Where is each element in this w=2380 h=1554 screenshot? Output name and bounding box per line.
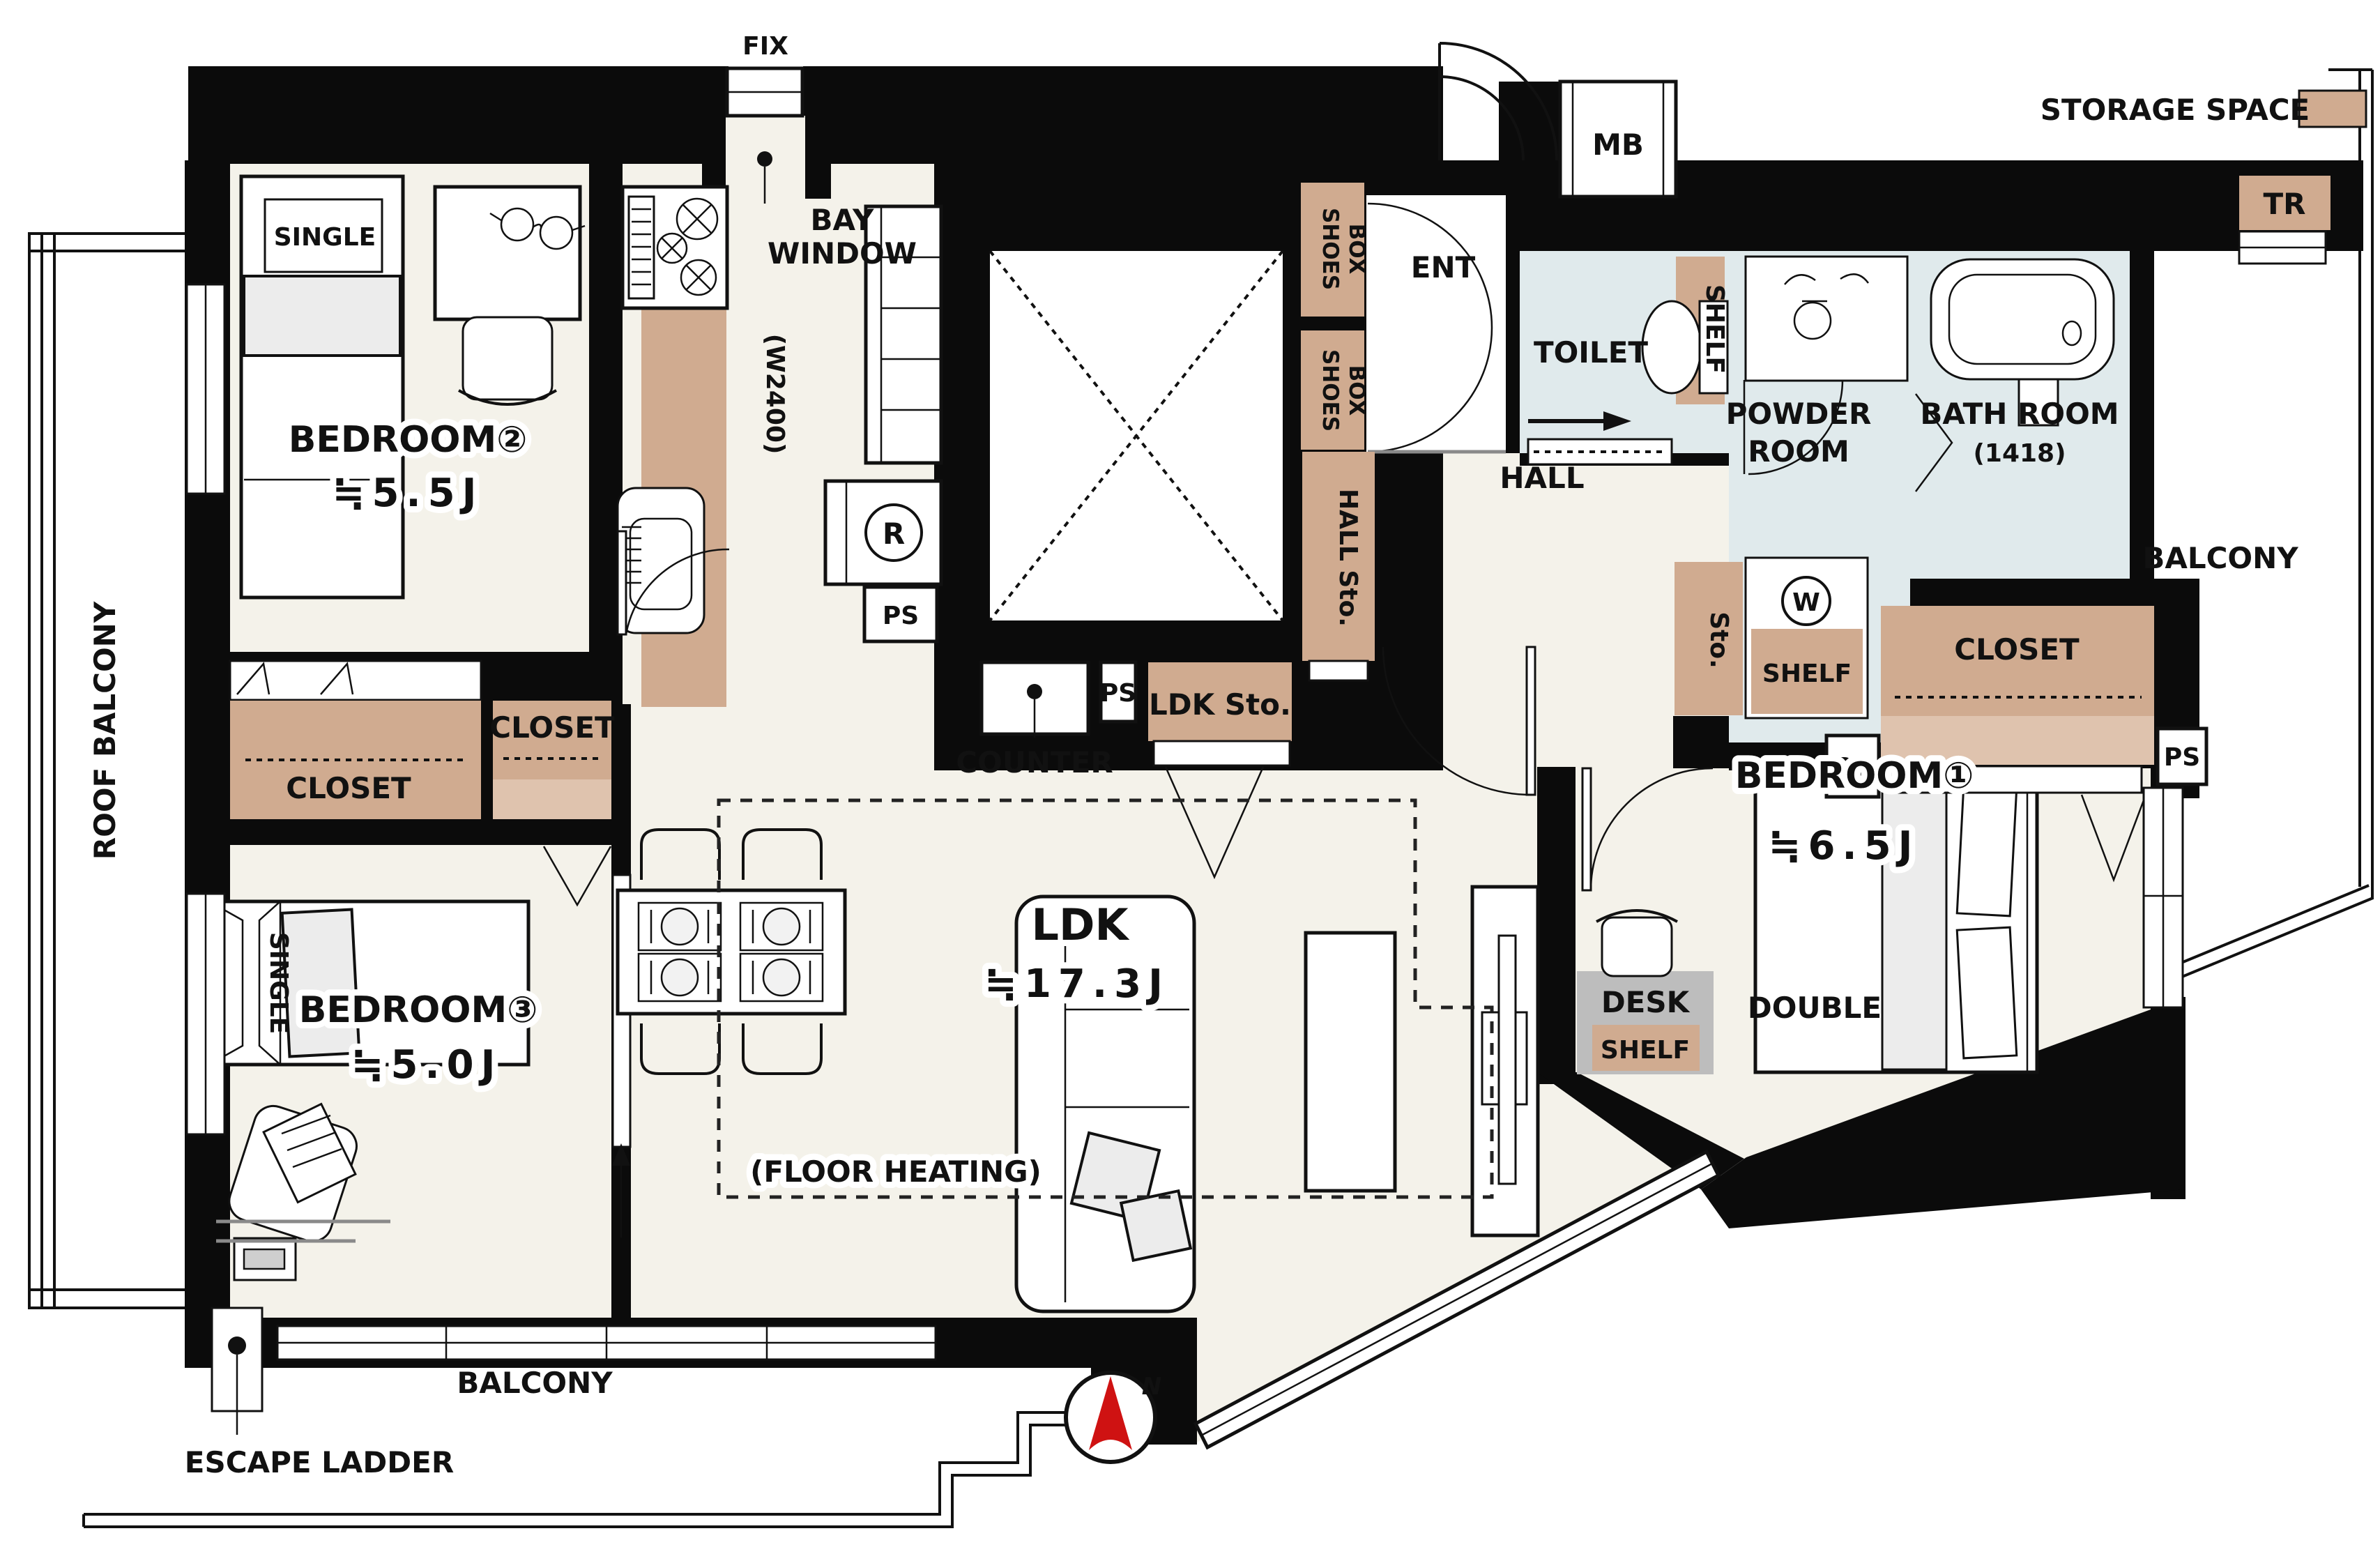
bedroom2-label: BEDROOM② xyxy=(289,419,528,461)
bedroom2-chair xyxy=(463,317,552,399)
bay-window xyxy=(726,68,805,204)
north-label: N xyxy=(1142,1373,1161,1401)
powder-sto-label: Sto. xyxy=(1704,611,1733,669)
balcony-right-label: BALCONY xyxy=(2142,541,2298,575)
ldk-size: ≒17.3J xyxy=(984,961,1170,1007)
ent-floor xyxy=(1366,195,1506,452)
bay-window-label-2: WINDOW xyxy=(768,236,917,271)
bay-window-label-1: BAY xyxy=(811,203,874,237)
escape-ladder-box xyxy=(212,1308,262,1435)
washer-label: W xyxy=(1792,588,1820,617)
bedroom2-desk xyxy=(435,187,580,319)
bed3-single-label: SINGLE xyxy=(264,932,293,1035)
hall-label: HALL xyxy=(1500,461,1584,495)
bedroom1-size: ≒6.5J xyxy=(1769,823,1920,869)
desk-shelf-label: SHELF xyxy=(1601,1036,1690,1065)
counter-label: COUNTER xyxy=(956,745,1113,779)
tv xyxy=(1499,936,1516,1184)
ent-label: ENT xyxy=(1411,250,1476,284)
coffee-table xyxy=(1306,933,1395,1191)
floor-heating-label: (FLOOR HEATING) xyxy=(750,1155,1042,1189)
closet1-label: CLOSET xyxy=(1954,632,2080,666)
bed2-single-label: SINGLE xyxy=(274,223,376,252)
bedroom1-chair xyxy=(1602,917,1672,976)
bedroom2-size: ≒5.5J xyxy=(333,471,484,516)
closet2-label: CLOSET xyxy=(286,771,411,805)
toilet-bowl xyxy=(1642,301,1701,393)
bedroom3-label: BEDROOM③ xyxy=(299,989,538,1031)
roof-balcony-label: ROOF BALCONY xyxy=(88,601,122,860)
bed-single-3 xyxy=(209,901,528,1065)
ps-kitchen-label: PS xyxy=(883,602,919,630)
ldk-storage-sill xyxy=(1154,741,1290,765)
fix-label: FIX xyxy=(742,32,788,61)
powder-room-label-1: POWDER xyxy=(1726,397,1872,431)
shoes-box1-label-1: SHOES xyxy=(1318,208,1343,290)
closet3-label: CLOSET xyxy=(489,710,615,745)
toilet-label: TOILET xyxy=(1534,335,1648,370)
shoes-box2-label-2: BOX xyxy=(1344,365,1369,416)
shoes-box1-label-2: BOX xyxy=(1344,224,1369,275)
floor-plan-page: FIX BAY WINDOW (W2400) MB STORAGE SPACE … xyxy=(0,0,2380,1554)
bed2-pillow xyxy=(244,276,400,356)
ps-wall-label: PS xyxy=(2164,743,2200,772)
ldk-sto-label: LDK Sto. xyxy=(1149,687,1291,722)
bedroom1-label: BEDROOM① xyxy=(1735,755,1974,797)
bed1-pillow-1 xyxy=(1957,785,2017,916)
desk-label: DESK xyxy=(1601,985,1691,1019)
bed3-pillow xyxy=(282,910,360,1057)
balcony-bottom-label: BALCONY xyxy=(457,1366,613,1400)
bath-room-label: BATH ROOM xyxy=(1920,397,2119,431)
mb-label: MB xyxy=(1592,128,1644,162)
shoes-box2-label-1: SHOES xyxy=(1318,349,1343,432)
bath-size-label: (1418) xyxy=(1973,439,2066,468)
kitchen-width-label: (W2400) xyxy=(761,334,789,455)
tr-label: TR xyxy=(2264,187,2306,221)
escape-ladder-label: ESCAPE LADDER xyxy=(185,1445,454,1479)
storage-space-label: STORAGE SPACE xyxy=(2040,93,2310,127)
bathtub xyxy=(1931,259,2114,379)
bed1-pillow-2 xyxy=(1957,927,2017,1058)
powder-room-label-2: ROOM xyxy=(1748,434,1849,469)
ldk-label: LDK xyxy=(1031,899,1129,950)
bedroom2-closet-sill xyxy=(230,661,481,700)
washbasin-counter xyxy=(1746,257,1907,381)
void-shaft xyxy=(990,251,1283,620)
ps-counter-label: PS xyxy=(1100,679,1136,708)
hall-sto-label: HALL Sto. xyxy=(1334,489,1362,627)
floor-plan: FIX BAY WINDOW (W2400) MB STORAGE SPACE … xyxy=(0,0,2380,1554)
toilet-shelf-label: SHELF xyxy=(1700,284,1729,374)
powder-shelf-label: SHELF xyxy=(1762,660,1852,688)
refrigerator-label: R xyxy=(883,517,905,551)
bedroom3-size: ≒5.0J xyxy=(351,1042,503,1088)
double-bed-label: DOUBLE xyxy=(1748,991,1882,1025)
